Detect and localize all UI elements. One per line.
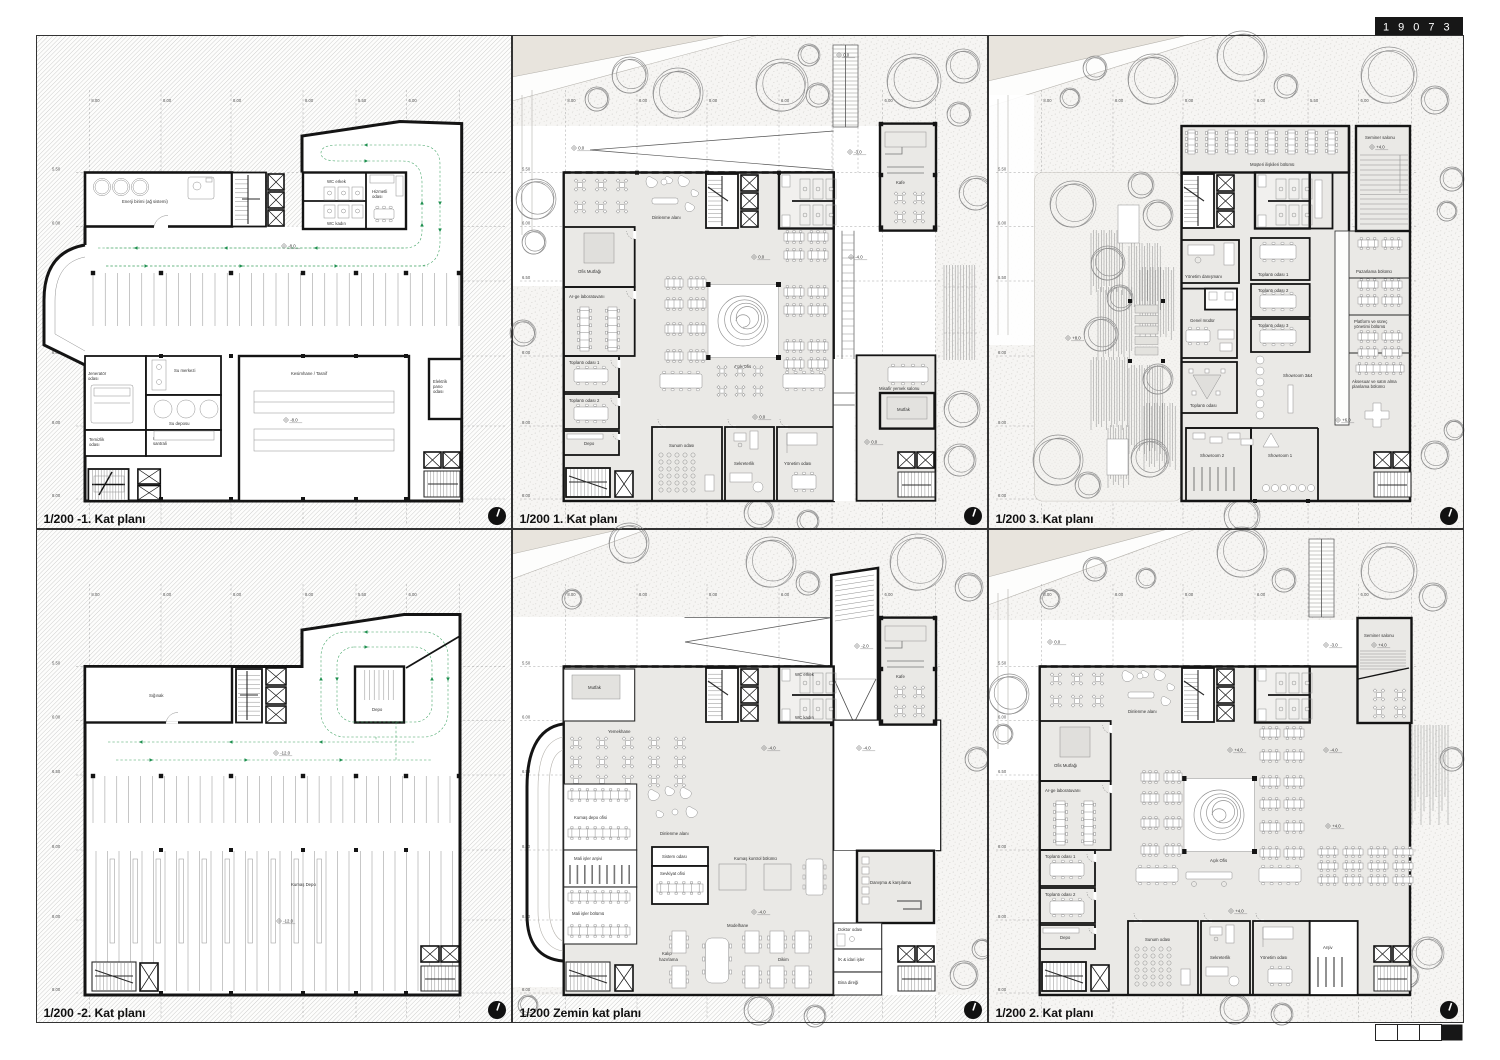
svg-text:-4.0: -4.0 xyxy=(855,254,863,259)
svg-text:8.00: 8.00 xyxy=(998,420,1007,425)
svg-text:8.00: 8.00 xyxy=(639,98,648,103)
svg-text:0.0: 0.0 xyxy=(1054,639,1061,644)
svg-text:Kumaş Depo: Kumaş Depo xyxy=(291,882,316,887)
svg-text:6.50: 6.50 xyxy=(998,275,1007,280)
svg-text:0.0: 0.0 xyxy=(758,254,765,259)
svg-text:Seminer salonu: Seminer salonu xyxy=(1365,135,1395,140)
svg-text:Danışma & karşılama: Danışma & karşılama xyxy=(870,880,912,885)
svg-text:-2.0: -2.0 xyxy=(861,643,869,648)
svg-text:WC erkek: WC erkek xyxy=(795,672,815,677)
svg-text:+4.0: +4.0 xyxy=(1234,747,1243,752)
svg-text:WC erkek: WC erkek xyxy=(327,179,347,184)
svg-text:Su merkezi: Su merkezi xyxy=(174,368,196,373)
svg-text:Ar-ge laboratuvarıı: Ar-ge laboratuvarıı xyxy=(1045,788,1081,793)
svg-text:-4.0: -4.0 xyxy=(1330,747,1338,752)
svg-text:Müşteri ilişkileri bölümü: Müşteri ilişkileri bölümü xyxy=(1250,162,1295,167)
svg-text:planlama bölümü: planlama bölümü xyxy=(1352,384,1385,389)
svg-text:1/200 2. Kat planı: 1/200 2. Kat planı xyxy=(996,1006,1094,1020)
svg-text:Sekreterlik: Sekreterlik xyxy=(1210,955,1231,960)
svg-text:8.00: 8.00 xyxy=(52,493,61,498)
svg-text:Mali işler bölümü: Mali işler bölümü xyxy=(572,911,605,916)
svg-text:Depo: Depo xyxy=(1060,935,1071,940)
svg-text:8.00: 8.00 xyxy=(233,592,242,597)
svg-text:+4.0: +4.0 xyxy=(1376,144,1385,149)
svg-text:8.00: 8.00 xyxy=(1043,98,1052,103)
svg-text:6.00: 6.00 xyxy=(1257,98,1266,103)
svg-text:Depo: Depo xyxy=(372,707,383,712)
svg-text:Dikim: Dikim xyxy=(778,957,789,962)
svg-text:Ofis Mutfağı: Ofis Mutfağı xyxy=(578,269,601,274)
svg-text:6.00: 6.00 xyxy=(1361,98,1370,103)
svg-text:Kafe: Kafe xyxy=(896,180,905,185)
svg-text:Yönetim danışmanı: Yönetim danışmanı xyxy=(1185,274,1222,279)
svg-text:-8.0: -8.0 xyxy=(290,417,298,422)
svg-text:+4.0: +4.0 xyxy=(1332,823,1341,828)
svg-text:+4.0: +4.0 xyxy=(1235,908,1244,913)
svg-text:Su deposu: Su deposu xyxy=(169,421,190,426)
svg-text:Sunum odası: Sunum odası xyxy=(669,443,694,448)
svg-text:6.00: 6.00 xyxy=(409,592,418,597)
svg-text:1/200 -2. Kat planı: 1/200 -2. Kat planı xyxy=(44,1006,146,1020)
svg-text:Kalıp: Kalıp xyxy=(662,951,672,956)
svg-text:6.00: 6.00 xyxy=(1257,592,1266,597)
svg-text:Mali işler arşivi: Mali işler arşivi xyxy=(574,856,602,861)
svg-text:Doktor odası: Doktor odası xyxy=(838,927,862,932)
svg-text:8.00: 8.00 xyxy=(1115,592,1124,597)
svg-text:8.00: 8.00 xyxy=(998,493,1007,498)
svg-text:Toplantı odası 1: Toplantı odası 1 xyxy=(1045,854,1076,859)
svg-text:Toplantı odası: Toplantı odası xyxy=(1190,403,1217,408)
svg-text:8.00: 8.00 xyxy=(998,350,1007,355)
svg-text:6.00: 6.00 xyxy=(781,98,790,103)
svg-text:6.50: 6.50 xyxy=(998,769,1007,774)
svg-text:1/200 1. Kat planı: 1/200 1. Kat planı xyxy=(520,512,618,526)
svg-text:8.00: 8.00 xyxy=(91,592,100,597)
svg-text:Sekreterlik: Sekreterlik xyxy=(734,461,755,466)
svg-text:Dinlenme alanı: Dinlenme alanı xyxy=(1128,709,1157,714)
svg-text:5.50: 5.50 xyxy=(52,661,61,666)
svg-text:6.00: 6.00 xyxy=(52,221,61,226)
svg-text:+6.0: +6.0 xyxy=(1342,417,1351,422)
svg-text:Açık Ofis: Açık Ofis xyxy=(1210,858,1227,863)
svg-text:8.00: 8.00 xyxy=(998,844,1007,849)
svg-text:6.00: 6.00 xyxy=(998,221,1007,226)
svg-text:-4.0: -4.0 xyxy=(768,745,776,750)
svg-text:8.00: 8.00 xyxy=(163,98,172,103)
svg-text:Dinlenme alanı: Dinlenme alanı xyxy=(660,831,689,836)
svg-text:Kumaş depo ofisi: Kumaş depo ofisi xyxy=(574,815,607,820)
svg-text:-3.0: -3.0 xyxy=(854,149,862,154)
svg-text:8.00: 8.00 xyxy=(709,98,718,103)
svg-text:8.00: 8.00 xyxy=(522,350,531,355)
svg-text:Ar-ge laboratuvarıı: Ar-ge laboratuvarıı xyxy=(569,294,605,299)
svg-text:santrali: santrali xyxy=(153,441,167,446)
svg-text:-8.0: -8.0 xyxy=(288,243,296,248)
svg-text:8.00: 8.00 xyxy=(1185,592,1194,597)
svg-text:1/200 -1. Kat planı: 1/200 -1. Kat planı xyxy=(44,512,146,526)
svg-text:6.00: 6.00 xyxy=(885,592,894,597)
svg-text:Dinlenme alanı: Dinlenme alanı xyxy=(652,215,681,220)
svg-text:-4.0: -4.0 xyxy=(758,909,766,914)
svg-text:Yönetim odası: Yönetim odası xyxy=(784,461,811,466)
svg-text:Toplantı odası 2: Toplantı odası 2 xyxy=(569,398,600,403)
svg-text:Enerji birimi (ağ sistemi): Enerji birimi (ağ sistemi) xyxy=(122,199,168,204)
svg-text:6.00: 6.00 xyxy=(52,715,61,720)
svg-text:0.0: 0.0 xyxy=(843,52,850,57)
svg-text:8.00: 8.00 xyxy=(1043,592,1052,597)
svg-text:odası: odası xyxy=(88,376,99,381)
svg-text:Sığınak: Sığınak xyxy=(149,693,164,698)
svg-text:odası: odası xyxy=(89,442,100,447)
svg-text:6.50: 6.50 xyxy=(522,275,531,280)
svg-text:8.00: 8.00 xyxy=(522,987,531,992)
svg-text:6.00: 6.00 xyxy=(998,715,1007,720)
svg-text:Arşiv: Arşiv xyxy=(1323,945,1333,950)
svg-text:8.00: 8.00 xyxy=(52,844,61,849)
svg-text:6.00: 6.00 xyxy=(1361,592,1370,597)
svg-text:8.00: 8.00 xyxy=(1115,98,1124,103)
svg-text:8.00: 8.00 xyxy=(522,493,531,498)
svg-text:WC kadın: WC kadın xyxy=(327,221,346,226)
svg-text:1/200 Zemin kat planı: 1/200 Zemin kat planı xyxy=(520,1006,642,1020)
svg-text:5.50: 5.50 xyxy=(998,661,1007,666)
svg-text:8.00: 8.00 xyxy=(52,987,61,992)
svg-text:Modelhane: Modelhane xyxy=(727,923,749,928)
svg-text:5.50: 5.50 xyxy=(522,167,531,172)
svg-text:Yönetim odası: Yönetim odası xyxy=(1260,955,1287,960)
svg-text:8.00: 8.00 xyxy=(567,592,576,597)
svg-text:Mutfak: Mutfak xyxy=(588,685,602,690)
svg-text:Bina direği: Bina direği xyxy=(838,980,858,985)
svg-text:5.50: 5.50 xyxy=(358,98,367,103)
svg-text:0.0: 0.0 xyxy=(871,439,878,444)
svg-text:WC kadın: WC kadın xyxy=(795,715,814,720)
svg-text:Showroom 1: Showroom 1 xyxy=(1268,453,1293,458)
svg-text:-12.0: -12.0 xyxy=(280,750,290,755)
svg-text:8.00: 8.00 xyxy=(639,592,648,597)
svg-text:Toplantı odası 2: Toplantı odası 2 xyxy=(1045,892,1076,897)
svg-text:hazırlama: hazırlama xyxy=(659,957,678,962)
svg-text:6.00: 6.00 xyxy=(885,98,894,103)
svg-text:6.00: 6.00 xyxy=(409,98,418,103)
svg-text:8.00: 8.00 xyxy=(998,987,1007,992)
svg-text:-3.0: -3.0 xyxy=(1330,642,1338,647)
svg-text:Kafe: Kafe xyxy=(896,674,905,679)
svg-text:8.00: 8.00 xyxy=(1185,98,1194,103)
svg-text:odası: odası xyxy=(372,194,383,199)
svg-text:8.00: 8.00 xyxy=(233,98,242,103)
svg-text:8.00: 8.00 xyxy=(163,592,172,597)
svg-text:8.00: 8.00 xyxy=(52,914,61,919)
svg-text:Pazarlama bölümü: Pazarlama bölümü xyxy=(1356,269,1392,274)
svg-text:8.00: 8.00 xyxy=(709,592,718,597)
svg-text:İK & idari işler: İK & idari işler xyxy=(838,957,865,962)
svg-text:8.00: 8.00 xyxy=(305,592,314,597)
svg-text:Toplantı odası 1: Toplantı odası 1 xyxy=(569,360,600,365)
svg-text:6.50: 6.50 xyxy=(52,769,61,774)
svg-text:Yemekhane: Yemekhane xyxy=(608,729,631,734)
svg-text:yönetimi bölümü: yönetimi bölümü xyxy=(1354,324,1386,329)
svg-text:Sevkiyat ofisi: Sevkiyat ofisi xyxy=(660,871,685,876)
svg-text:5.50: 5.50 xyxy=(1310,98,1319,103)
svg-text:19073: 19073 xyxy=(1383,22,1459,34)
svg-text:Genel müdür: Genel müdür xyxy=(1190,318,1215,323)
svg-text:6.00: 6.00 xyxy=(522,715,531,720)
svg-text:8.00: 8.00 xyxy=(567,98,576,103)
svg-text:0.0: 0.0 xyxy=(578,145,585,150)
svg-text:0.0: 0.0 xyxy=(759,414,766,419)
svg-text:1/200 3. Kat planı: 1/200 3. Kat planı xyxy=(996,512,1094,526)
svg-text:Kumaş kontrol bölümü: Kumaş kontrol bölümü xyxy=(734,856,777,861)
svg-text:8.00: 8.00 xyxy=(91,98,100,103)
svg-text:Ofis Mutfağı: Ofis Mutfağı xyxy=(1054,763,1077,768)
svg-text:Sistem odası: Sistem odası xyxy=(662,854,687,859)
svg-text:6.00: 6.00 xyxy=(781,592,790,597)
svg-text:Showroom 3&4: Showroom 3&4 xyxy=(1283,373,1313,378)
svg-text:odası: odası xyxy=(433,389,444,394)
svg-text:8.00: 8.00 xyxy=(305,98,314,103)
svg-text:-12.0: -12.0 xyxy=(283,918,293,923)
svg-text:Toplantı odası 1: Toplantı odası 1 xyxy=(1258,272,1289,277)
svg-text:5.50: 5.50 xyxy=(52,167,61,172)
svg-text:8.00: 8.00 xyxy=(998,914,1007,919)
svg-text:Mutfak: Mutfak xyxy=(897,407,911,412)
svg-text:Showroom 2: Showroom 2 xyxy=(1200,453,1225,458)
svg-text:5.50: 5.50 xyxy=(522,661,531,666)
svg-text:8.00: 8.00 xyxy=(52,420,61,425)
svg-text:8.00: 8.00 xyxy=(522,420,531,425)
svg-text:Kesimhane / Tasnif: Kesimhane / Tasnif xyxy=(291,371,328,376)
svg-text:+8.0: +8.0 xyxy=(1072,335,1081,340)
svg-text:-4.0: -4.0 xyxy=(863,745,871,750)
svg-text:6.00: 6.00 xyxy=(522,221,531,226)
svg-text:Seminer salonu: Seminer salonu xyxy=(1364,633,1394,638)
svg-text:Depo: Depo xyxy=(584,441,595,446)
svg-text:Misafir yemek salonu: Misafir yemek salonu xyxy=(879,386,920,391)
svg-text:+4.0: +4.0 xyxy=(1378,642,1387,647)
svg-text:5.50: 5.50 xyxy=(998,167,1007,172)
svg-text:5.50: 5.50 xyxy=(358,592,367,597)
svg-text:Sunum odası: Sunum odası xyxy=(1145,937,1170,942)
